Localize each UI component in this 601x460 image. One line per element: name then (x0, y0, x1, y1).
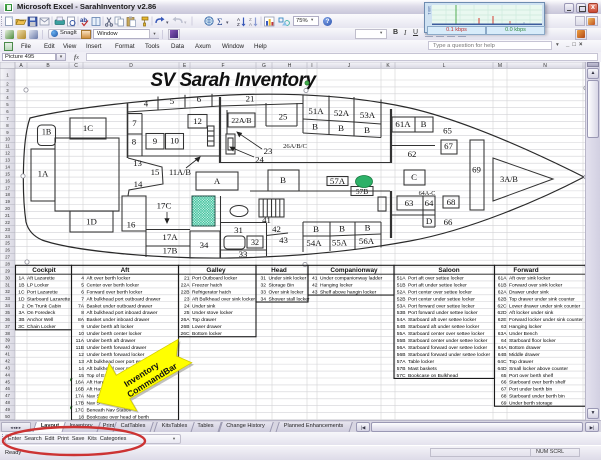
svg-text:55A: 55A (332, 238, 348, 248)
svg-text:B: B (313, 224, 319, 234)
svg-text:42: 42 (5, 359, 10, 364)
svg-text:5: 5 (81, 282, 84, 288)
svg-text:32: 32 (251, 238, 259, 247)
svg-text:62E: 62E (498, 317, 507, 323)
svg-text:Bottom locker: Bottom locker (192, 331, 222, 337)
svg-text:64: 64 (425, 198, 434, 208)
svg-text:13: 13 (79, 359, 85, 365)
svg-text:53B: 53B (397, 310, 406, 316)
svg-text:52B: 52B (397, 296, 406, 302)
svg-text:54A: 54A (306, 238, 322, 248)
svg-text:40: 40 (5, 345, 10, 350)
svg-text:49: 49 (5, 407, 10, 412)
svg-text:Aft over sink locker: Aft over sink locker (509, 275, 551, 281)
svg-text:29: 29 (5, 268, 10, 273)
svg-text:Under Bench: Under Bench (509, 331, 538, 337)
svg-text:▾: ▾ (184, 20, 187, 26)
svg-text:Forward: Forward (513, 267, 538, 274)
svg-text:Bottom drawer: Bottom drawer (509, 345, 541, 351)
svg-text:57B: 57B (397, 366, 406, 372)
svg-text:7: 7 (81, 296, 84, 302)
svg-text:27: 27 (5, 255, 10, 260)
svg-text:62D: 62D (498, 310, 507, 316)
svg-text:43: 43 (312, 289, 318, 295)
svg-text:63: 63 (405, 198, 414, 208)
svg-text:Under berth storage: Under berth storage (509, 401, 553, 407)
svg-text:24: 24 (5, 234, 10, 239)
svg-text:56A: 56A (397, 345, 406, 351)
svg-text:B: B (365, 223, 371, 233)
svg-text:Port Outboard locker: Port Outboard locker (192, 275, 237, 281)
svg-text:7: 7 (132, 118, 137, 128)
svg-text:D: D (129, 63, 133, 69)
svg-text:34: 34 (5, 303, 10, 308)
svg-text:69: 69 (472, 165, 481, 175)
svg-text:10: 10 (5, 137, 10, 142)
svg-text:31: 31 (261, 275, 267, 281)
svg-text:Aft locker under sink: Aft locker under sink (509, 310, 554, 316)
svg-text:43: 43 (279, 235, 288, 245)
svg-text:Companionway: Companionway (330, 267, 378, 274)
svg-text:L: L (443, 63, 446, 69)
svg-text:25: 25 (184, 310, 190, 316)
svg-text:32: 32 (5, 289, 10, 294)
svg-text:Forward over sink locker: Forward over sink locker (509, 282, 563, 288)
svg-text:11: 11 (5, 144, 10, 149)
svg-text:▾: ▾ (226, 20, 229, 26)
svg-text:11A: 11A (76, 338, 85, 344)
svg-text:Σ: Σ (217, 18, 223, 28)
svg-text:Aft bulkhead port inboard draw: Aft bulkhead port inboard drawer (87, 310, 158, 316)
svg-text:66: 66 (444, 217, 453, 227)
svg-text:24: 24 (255, 155, 264, 165)
svg-text:Port center under settee locke: Port center under settee locker (408, 296, 475, 302)
svg-text:F: F (221, 63, 224, 69)
svg-text:23: 23 (5, 227, 10, 232)
svg-text:65: 65 (501, 373, 507, 379)
svg-text:16: 16 (127, 220, 136, 230)
svg-text:53A: 53A (397, 303, 406, 309)
svg-text:63: 63 (501, 324, 507, 330)
svg-text:Starboard floor locker: Starboard floor locker (509, 338, 556, 344)
svg-text:18: 18 (5, 192, 10, 197)
svg-text:41: 41 (5, 352, 10, 357)
svg-text:Under companionway ladder: Under companionway ladder (320, 275, 383, 281)
svg-text:52A: 52A (397, 289, 406, 295)
svg-text:1D: 1D (86, 217, 97, 227)
svg-text:8: 8 (81, 310, 84, 316)
svg-text:26A/B/C: 26A/B/C (283, 143, 307, 150)
svg-text:62A: 62A (498, 289, 507, 295)
svg-text:H: H (288, 63, 292, 69)
svg-text:G: G (262, 63, 266, 69)
svg-text:64D: 64D (498, 366, 507, 372)
svg-text:46: 46 (5, 386, 10, 391)
svg-text:17B: 17B (75, 401, 84, 407)
svg-text:Basket under outboard drawer: Basket under outboard drawer (87, 303, 153, 309)
svg-text:12: 12 (79, 352, 85, 358)
svg-text:Port forward under settee lock: Port forward under settee locker (408, 310, 478, 316)
svg-text:4: 4 (81, 275, 84, 281)
svg-text:1C: 1C (18, 289, 25, 295)
svg-text:15: 15 (79, 373, 85, 379)
svg-text:M: M (498, 63, 502, 69)
svg-text:Hanging locker: Hanging locker (320, 282, 353, 288)
svg-text:Refrigerator hatch: Refrigerator hatch (192, 289, 231, 295)
svg-text:33: 33 (261, 289, 267, 295)
svg-text:13: 13 (133, 158, 142, 168)
svg-text:42: 42 (312, 282, 318, 288)
svg-text:Starboard aft under settee loc: Starboard aft under settee locker (408, 324, 480, 330)
svg-text:33: 33 (5, 296, 10, 301)
svg-text:15: 15 (5, 171, 10, 176)
svg-text:35: 35 (5, 310, 10, 315)
svg-text:26: 26 (5, 248, 10, 253)
svg-text:Top drawer: Top drawer (509, 359, 534, 365)
svg-text:1B: 1B (42, 128, 51, 137)
svg-text:36: 36 (5, 317, 10, 322)
svg-text:68: 68 (501, 394, 507, 400)
svg-text:24: 24 (184, 303, 190, 309)
svg-text:Drawer under sink: Drawer under sink (509, 289, 549, 295)
svg-text:B: B (421, 119, 427, 129)
svg-text:A: A (249, 22, 252, 27)
svg-text:63A: 63A (498, 331, 507, 337)
svg-text:41: 41 (262, 215, 271, 225)
svg-text:10: 10 (79, 331, 85, 337)
svg-text:3A/B: 3A/B (500, 175, 518, 184)
svg-text:Aft bulkhead port outboard dra: Aft bulkhead port outboard drawer (87, 296, 161, 302)
svg-text:1A: 1A (19, 275, 26, 281)
svg-text:16A: 16A (75, 380, 84, 386)
svg-text:56A: 56A (359, 236, 375, 246)
svg-text:Saloon: Saloon (438, 267, 459, 274)
svg-text:14: 14 (5, 164, 10, 169)
svg-text:22B: 22B (181, 289, 190, 295)
svg-text:9: 9 (153, 136, 158, 146)
svg-text:7A: 7A (78, 303, 85, 309)
svg-text:Under stove locker: Under stove locker (192, 310, 233, 316)
svg-text:69: 69 (501, 401, 507, 407)
svg-text:67: 67 (501, 387, 507, 393)
svg-text:9: 9 (81, 324, 84, 330)
svg-text:61A: 61A (395, 119, 411, 129)
svg-text:Middle drawer: Middle drawer (509, 352, 540, 358)
svg-text:66: 66 (501, 380, 507, 386)
svg-text:64C: 64C (498, 359, 507, 365)
svg-text:12: 12 (5, 151, 10, 156)
svg-text:1B: 1B (19, 282, 25, 288)
svg-text:25: 25 (279, 112, 288, 122)
svg-text:12: 12 (193, 116, 202, 126)
svg-text:Port under berth bin: Port under berth bin (509, 387, 553, 393)
svg-text:Aft: Aft (121, 267, 131, 274)
svg-text:Z: Z (237, 22, 240, 27)
svg-text:Under berth aft drawer: Under berth aft drawer (87, 338, 136, 344)
svg-text:Port Lazarette: Port Lazarette (27, 289, 58, 295)
svg-text:Head: Head (271, 267, 287, 274)
svg-text:Starboard forward under settee: Starboard forward under settee locker (408, 352, 490, 358)
svg-text:Under berth forward locker: Under berth forward locker (87, 352, 145, 358)
svg-text:41: 41 (312, 275, 318, 281)
svg-text:13: 13 (5, 158, 10, 163)
svg-text:65: 65 (443, 126, 452, 136)
svg-text:25: 25 (5, 241, 10, 246)
svg-text:Aft Bulkhead over sink locker: Aft Bulkhead over sink locker (192, 296, 255, 302)
svg-text:34: 34 (261, 296, 267, 302)
svg-text:Aft over berth locker: Aft over berth locker (87, 275, 131, 281)
svg-text:22A: 22A (181, 282, 190, 288)
svg-text:Port over berth shelf: Port over berth shelf (509, 373, 554, 379)
svg-text:26B: 26B (181, 324, 190, 330)
svg-text:Lower drawer: Lower drawer (192, 324, 222, 330)
svg-text:Cockpit: Cockpit (32, 267, 56, 274)
svg-text:64A-C: 64A-C (419, 190, 436, 197)
svg-text:3C: 3C (18, 324, 25, 330)
svg-text:Top drawer under sink counter: Top drawer under sink counter (509, 296, 575, 302)
svg-text:67: 67 (444, 141, 453, 151)
svg-text:Under berth aft locker: Under berth aft locker (87, 324, 134, 330)
svg-text:8A: 8A (78, 317, 85, 323)
svg-text:30: 30 (5, 275, 10, 280)
svg-text:54B: 54B (397, 324, 406, 330)
svg-text:11B: 11B (76, 345, 84, 351)
svg-text:N: N (543, 63, 547, 69)
svg-text:16B: 16B (75, 387, 84, 393)
svg-text:Center over berth locker: Center over berth locker (87, 282, 140, 288)
svg-text:Under berth center locker: Under berth center locker (87, 331, 143, 337)
svg-text:57C: 57C (397, 373, 406, 379)
svg-text:Shelf above hangin locker: Shelf above hangin locker (320, 289, 377, 295)
svg-text:On Trunk Cabin: On Trunk Cabin (27, 303, 62, 309)
svg-text:Storage Bin: Storage Bin (269, 282, 295, 288)
svg-text:6: 6 (81, 289, 84, 295)
svg-text:31: 31 (234, 225, 243, 235)
svg-text:15: 15 (151, 167, 160, 177)
svg-text:Forward over berth locker: Forward over berth locker (87, 289, 143, 295)
svg-text:62: 62 (408, 149, 417, 159)
svg-text:B: B (338, 123, 344, 133)
svg-text:14: 14 (134, 179, 143, 189)
svg-text:23: 23 (264, 146, 273, 156)
svg-text:54A: 54A (397, 317, 406, 323)
svg-text:B: B (339, 224, 345, 234)
svg-text:55B: 55B (397, 338, 406, 344)
svg-text:Port center over settee locker: Port center over settee locker (408, 289, 472, 295)
svg-text:3B: 3B (19, 317, 25, 323)
svg-text:17A: 17A (162, 232, 178, 242)
svg-text:C: C (411, 172, 417, 182)
svg-text:64B: 64B (498, 352, 507, 358)
svg-text:51B: 51B (397, 282, 406, 288)
svg-text:A: A (214, 176, 221, 186)
svg-text:47: 47 (5, 393, 10, 398)
svg-text:17A: 17A (75, 394, 84, 400)
svg-text:3A: 3A (19, 310, 26, 316)
svg-text:20: 20 (5, 206, 10, 211)
svg-text:Starboard forward over settee: Starboard forward over settee locker (408, 345, 487, 351)
svg-text:5: 5 (170, 96, 175, 106)
svg-text:Mast baskets: Mast baskets (408, 366, 437, 372)
svg-text:33: 33 (239, 249, 248, 259)
svg-text:52A: 52A (334, 108, 350, 118)
svg-text:Under sink: Under sink (192, 303, 216, 309)
svg-text:22A/B: 22A/B (231, 116, 251, 125)
svg-text:53A: 53A (360, 110, 376, 120)
svg-text:61B: 61B (498, 282, 507, 288)
svg-text:62B: 62B (498, 296, 507, 302)
svg-text:37: 37 (5, 324, 10, 329)
svg-text:57B: 57B (356, 187, 368, 196)
svg-text:17: 17 (5, 185, 10, 190)
svg-text:Basket under inboard drawer: Basket under inboard drawer (87, 317, 150, 323)
svg-text:Hanging locker: Hanging locker (509, 324, 542, 330)
svg-text:51A: 51A (308, 106, 324, 116)
svg-text:Table locker: Table locker (408, 359, 434, 365)
svg-text:D: D (426, 216, 432, 226)
svg-text:31: 31 (5, 282, 10, 287)
svg-text:57A: 57A (397, 359, 406, 365)
svg-text:Shower stall locker: Shower stall locker (269, 296, 310, 302)
svg-text:On Foredeck: On Foredeck (27, 310, 56, 316)
svg-text:Port aft over settee locker: Port aft over settee locker (408, 275, 464, 281)
svg-text:1: 1 (6, 73, 9, 78)
svg-text:19: 19 (5, 199, 10, 204)
svg-text:17B: 17B (163, 246, 178, 256)
svg-text:Starboard center under settee: Starboard center under settee locker (408, 338, 488, 344)
svg-text:SV Sarah Inventory: SV Sarah Inventory (150, 70, 317, 91)
svg-text:28: 28 (5, 261, 10, 266)
svg-text:Freezer hatch: Freezer hatch (192, 282, 222, 288)
svg-text:Starboard over berth shelf: Starboard over berth shelf (509, 380, 566, 386)
svg-text:39: 39 (5, 338, 10, 343)
svg-text:8: 8 (132, 137, 137, 147)
svg-text:26C: 26C (181, 331, 190, 337)
svg-text:38: 38 (5, 331, 10, 336)
svg-text:Starboard under berth bin: Starboard under berth bin (509, 394, 565, 400)
svg-text:48: 48 (5, 400, 10, 405)
svg-text:Anchor Well: Anchor Well (27, 317, 53, 323)
svg-text:Top drawer: Top drawer (192, 317, 217, 323)
svg-text:Lower drawer under sink counte: Lower drawer under sink counter (509, 303, 581, 309)
svg-text:▾: ▾ (166, 20, 169, 26)
svg-text:C: C (74, 63, 78, 69)
svg-text:45: 45 (5, 379, 10, 384)
svg-text:Under sink locker: Under sink locker (269, 275, 307, 281)
svg-text:Starboard center over settee l: Starboard center over settee locker (408, 331, 485, 337)
svg-text:23: 23 (184, 296, 190, 302)
svg-text:Aft Lazarette: Aft Lazarette (27, 275, 55, 281)
svg-text:Over sink locker: Over sink locker (269, 289, 304, 295)
svg-text:62C: 62C (498, 303, 507, 309)
svg-text:16: 16 (5, 178, 10, 183)
svg-text:55A: 55A (397, 331, 406, 337)
svg-text:61A: 61A (498, 275, 507, 281)
svg-text:Under berth forward drawer: Under berth forward drawer (87, 345, 147, 351)
svg-text:B: B (280, 175, 286, 185)
svg-text:51A: 51A (397, 275, 406, 281)
svg-text:1D: 1D (18, 296, 25, 302)
svg-text:43: 43 (5, 365, 10, 370)
svg-text:Port forward over settee locke: Port forward over settee locker (408, 303, 475, 309)
svg-text:6: 6 (197, 94, 202, 104)
svg-text:64A: 64A (498, 345, 507, 351)
svg-text:Starboard aft over settee lock: Starboard aft over settee locker (408, 317, 477, 323)
svg-text:Starboard Lazarette: Starboard Lazarette (27, 296, 71, 302)
svg-text:32: 32 (261, 282, 267, 288)
svg-text:22: 22 (5, 220, 10, 225)
svg-text:42: 42 (272, 224, 281, 234)
svg-text:26A: 26A (181, 317, 190, 323)
svg-text:Bookcase on Bulkhead: Bookcase on Bulkhead (408, 373, 458, 379)
svg-text:21: 21 (5, 213, 10, 218)
svg-text:I: I (311, 63, 312, 69)
svg-text:Galley: Galley (206, 267, 226, 274)
svg-text:68: 68 (447, 197, 456, 207)
svg-text:Chain Locker: Chain Locker (27, 324, 56, 330)
svg-text:Port aft under settee locker: Port aft under settee locker (408, 282, 467, 288)
svg-text:1A: 1A (38, 169, 49, 179)
svg-text:LP Locker: LP Locker (27, 282, 49, 288)
svg-text:B: B (312, 122, 318, 132)
svg-text:1C: 1C (83, 123, 93, 133)
svg-text:2: 2 (22, 303, 25, 309)
svg-text:B: B (364, 125, 370, 135)
svg-text:44: 44 (5, 372, 10, 377)
svg-text:14: 14 (79, 366, 85, 372)
svg-text:Small locker above counter: Small locker above counter (509, 366, 568, 372)
svg-text:4: 4 (144, 99, 149, 109)
svg-text:56B: 56B (397, 352, 406, 358)
svg-text:64: 64 (501, 338, 507, 344)
svg-text:17C: 17C (157, 201, 172, 211)
svg-text:11A/B: 11A/B (169, 168, 191, 177)
svg-text:34: 34 (200, 240, 209, 250)
svg-text:21: 21 (184, 275, 190, 281)
svg-text:Forward locker under sink coun: Forward locker under sink counter (509, 317, 583, 323)
svg-text:57A: 57A (330, 176, 346, 186)
svg-text:10: 10 (170, 136, 179, 146)
svg-text:21: 21 (246, 94, 255, 104)
